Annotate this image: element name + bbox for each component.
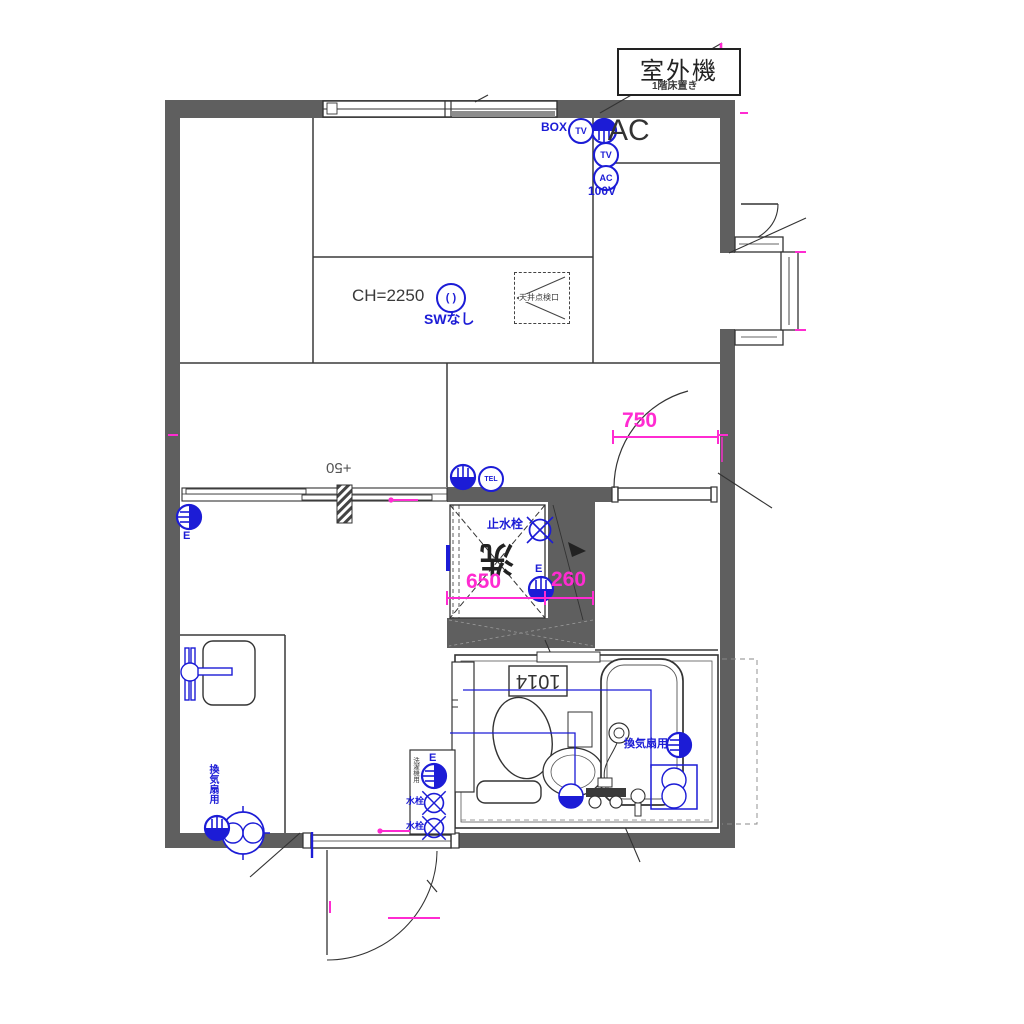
kitchen-counter — [181, 641, 255, 705]
stop-valve-label: 止水栓 — [487, 518, 523, 530]
bathroom — [452, 652, 757, 828]
outdoor-unit-note: 1階床置き — [652, 82, 698, 92]
bath-module-label: 1014 — [516, 671, 561, 691]
washer-note: 洗濯機用 — [411, 757, 418, 797]
bath-mixer — [586, 788, 626, 797]
tap-label: 水栓 — [406, 797, 424, 806]
box-label: BOX — [541, 121, 567, 133]
no-switch-label: SWなし — [424, 312, 475, 326]
kitchen-vent-fan-label: 換気扇用 — [207, 764, 217, 824]
ceiling-hatch-box: 天井点検口 — [514, 272, 570, 324]
dimension-dot — [388, 497, 393, 502]
floor-plan: 室外機 1階床置き BOX TV AC TV AC 100V CH=2250 (… — [0, 0, 1024, 1024]
entrance-door — [303, 833, 459, 960]
tap-label: 水栓 — [406, 822, 424, 831]
tv-outlet-symbol: TV — [568, 118, 594, 144]
dim-650: 650 — [466, 571, 501, 592]
dimension-dot — [377, 828, 382, 833]
bath-vent-fan-label: 換気扇用 — [624, 739, 668, 750]
ceiling-hatch-label: 天井点検口 — [519, 294, 559, 302]
dim-750: 750 — [622, 410, 657, 431]
dim-260: 260 — [551, 569, 586, 590]
floor-level-label: +50 — [326, 460, 351, 475]
tel-outlet-symbol: TEL — [478, 466, 504, 492]
bath-knob — [631, 789, 645, 803]
ceiling-height-label: CH=2250 — [352, 287, 424, 304]
switch-symbol: ( ) — [436, 283, 466, 313]
bath-counter — [568, 712, 592, 747]
voltage-label: 100V — [588, 185, 616, 197]
door-750 — [612, 391, 717, 502]
earth-label: E — [535, 564, 542, 575]
top-window — [323, 95, 557, 117]
earth-label: E — [183, 531, 190, 542]
sliding-door — [182, 485, 447, 523]
ac-label: AC — [608, 116, 650, 146]
plan-linework — [0, 0, 1024, 1024]
earth-label: E — [429, 753, 436, 764]
toilet-tank — [477, 781, 541, 803]
bath-drain — [559, 784, 583, 808]
